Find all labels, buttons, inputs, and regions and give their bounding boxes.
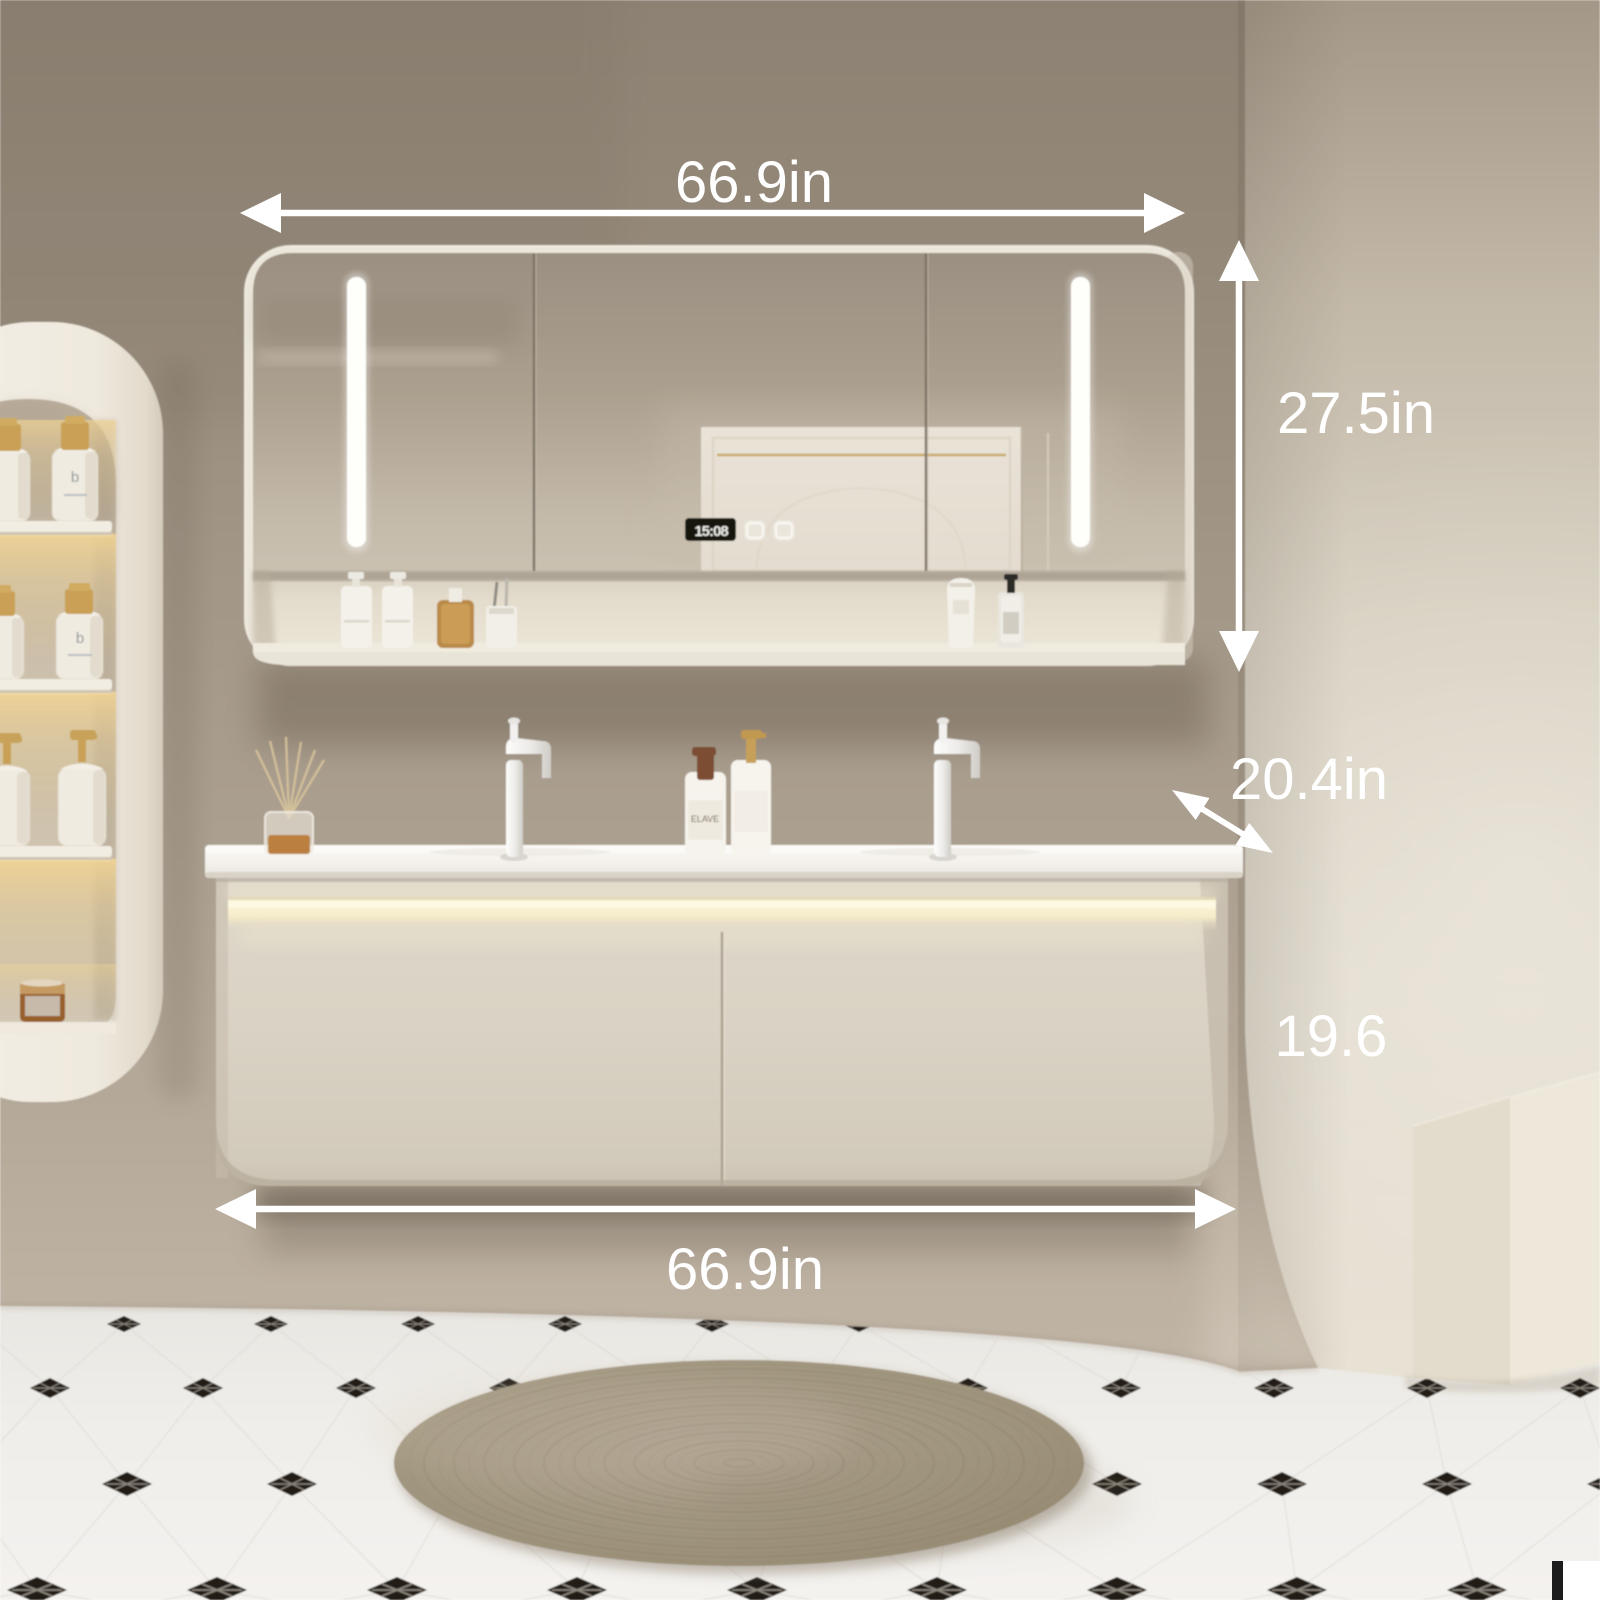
svg-text:20.4in: 20.4in [1230,747,1388,812]
svg-text:19.6: 19.6 [1275,1004,1388,1069]
svg-text:27.5in: 27.5in [1277,381,1435,446]
svg-text:b: b [76,630,84,647]
svg-text:66.9in: 66.9in [666,1237,824,1302]
svg-text:b: b [71,469,79,486]
svg-text:15:08: 15:08 [694,523,728,540]
svg-text:66.9in: 66.9in [675,150,833,215]
svg-text:ELAVE: ELAVE [691,814,719,824]
